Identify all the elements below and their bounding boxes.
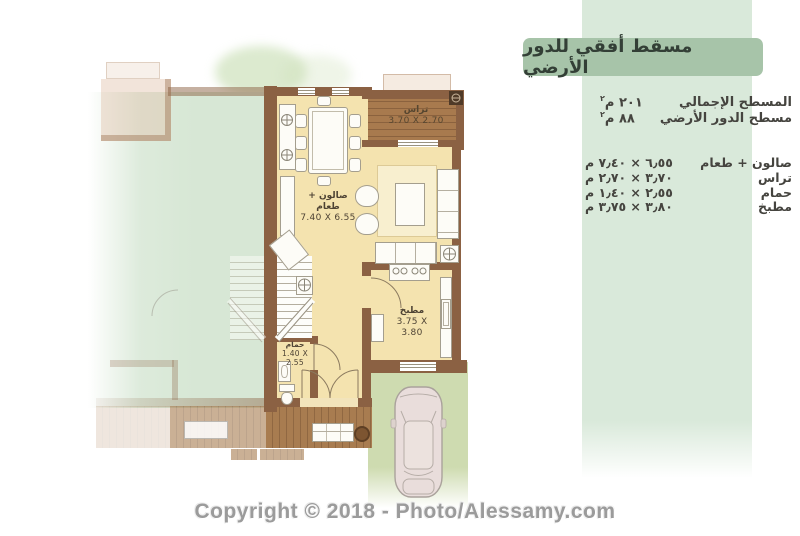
kitchen-name: مطبخ	[386, 306, 438, 317]
sofa-south	[375, 242, 437, 264]
neighbor-stairs	[230, 256, 264, 340]
room-label: مطبخ	[758, 199, 792, 214]
floor-plan-page: تراس 3.70 X 2.70 صالون + طعام 7.40 X 6.5…	[0, 0, 800, 536]
bath-door-gap	[310, 344, 318, 370]
room-row: حمام ٢٫٥٥ × ١٫٤٠ م	[585, 185, 792, 200]
area-value: ٨٨ م٢	[600, 110, 635, 126]
room-label: تراس	[758, 170, 792, 185]
area-row: المسطح الإجمالي ٢٠١ م٢	[600, 94, 792, 110]
area-number: ٢٠١	[619, 95, 643, 110]
area-unit: م	[605, 111, 615, 126]
room-row: مطبخ ٣٫٨٠ × ٣٫٧٥ م	[585, 199, 792, 214]
kitchen-window	[399, 362, 437, 371]
dining-chair	[349, 158, 361, 172]
panel-title-box: مسقط أفقي للدور الأرضي	[523, 38, 763, 76]
area-summary: المسطح الإجمالي ٢٠١ م٢ مسطح الدور الأرضي…	[600, 94, 792, 126]
area-row: مسطح الدور الأرضي ٨٨ م٢	[600, 110, 792, 126]
room-dims: ٢٫٥٥ × ١٫٤٠ م	[585, 185, 673, 200]
room-dims: ٦٫٥٥ × ٧٫٤٠ م	[585, 155, 673, 170]
page-title: مسقط أفقي للدور الأرضي	[523, 36, 763, 78]
toilet-tank	[279, 384, 295, 392]
salon-window-2	[331, 88, 350, 95]
neighbor-top-wall	[168, 87, 266, 96]
staircase	[277, 256, 312, 338]
porch-step-2	[260, 449, 304, 460]
salon-window-1	[297, 88, 316, 95]
neighbor-terrace-deck	[101, 79, 171, 141]
porch-step-1	[231, 449, 257, 460]
dining-chair	[295, 136, 307, 150]
salon-top-wall	[264, 87, 372, 96]
hall-plant-table	[296, 276, 313, 295]
dining-chair	[349, 114, 361, 128]
dining-chair	[295, 114, 307, 128]
salon-name: صالون + طعام	[296, 191, 360, 213]
neighbor-inner-wall-h	[110, 360, 174, 367]
toilet-bowl	[281, 392, 293, 405]
terrace-label: تراس 3.70 X 2.70	[380, 105, 452, 127]
room-label: حمام	[761, 185, 792, 200]
copyright-watermark: Copyright © 2018 - Photo/Alessamy.com	[170, 500, 640, 524]
neighbor-inner-wall-v	[172, 360, 178, 400]
area-label: مسطح الدور الأرضي	[660, 111, 792, 126]
room-dims: ٣٫٨٠ × ٣٫٧٥ م	[585, 199, 673, 214]
porch-bench	[312, 423, 354, 442]
terrace-column	[449, 91, 463, 105]
entry-door-gap	[300, 398, 358, 407]
terrace-name: تراس	[380, 105, 452, 116]
salon-label: صالون + طعام 7.40 X 6.55	[296, 191, 360, 223]
floor-lamp-table	[440, 245, 459, 263]
room-dims: ٣٫٧٠ × ٢٫٧٠ م	[585, 170, 673, 185]
area-value: ٢٠١ م٢	[600, 94, 643, 110]
area-unit: م	[605, 95, 615, 110]
kitchen-dims: 3.75 X 3.80	[386, 317, 438, 339]
terrace-dims: 3.70 X 2.70	[380, 116, 452, 127]
neighbor-terrace-planter	[106, 62, 160, 79]
room-row: تراس ٣٫٧٠ × ٢٫٧٠ م	[585, 170, 792, 185]
fridge	[371, 314, 384, 342]
dining-table-inner	[312, 111, 344, 170]
terrace-bottom-wall-left	[362, 140, 397, 147]
sideboard-cabinet	[279, 104, 296, 170]
porch-plant-pot	[354, 426, 370, 442]
neighbor-porch-far	[96, 406, 170, 448]
area-number: ٨٨	[619, 111, 635, 126]
dining-chair	[317, 176, 331, 186]
sofa-east	[437, 169, 459, 239]
sink-basin	[443, 302, 449, 326]
console-cabinet	[280, 176, 295, 236]
stove	[389, 264, 430, 281]
kitchen-door-gap	[362, 276, 371, 308]
dining-chair	[349, 136, 361, 150]
coffee-table	[395, 183, 425, 226]
terrace-bottom-wall-right	[439, 140, 464, 147]
dining-chair	[317, 96, 331, 106]
room-dimension-list: صالون + طعام ٦٫٥٥ × ٧٫٤٠ م تراس ٣٫٧٠ × ٢…	[585, 155, 792, 214]
dining-chair	[295, 158, 307, 172]
salon-dims: 7.40 X 6.55	[296, 213, 360, 224]
area-label: المسطح الإجمالي	[679, 95, 792, 110]
neighbor-bench	[184, 421, 228, 439]
terrace-door-sill	[397, 140, 439, 147]
room-row: صالون + طعام ٦٫٥٥ × ٧٫٤٠ م	[585, 155, 792, 170]
kitchen-label: مطبخ 3.75 X 3.80	[386, 306, 438, 338]
driveway-lawn	[368, 362, 468, 508]
room-label: صالون + طعام	[700, 155, 792, 170]
dining-table	[308, 107, 348, 174]
kitchen-sink	[441, 299, 451, 329]
